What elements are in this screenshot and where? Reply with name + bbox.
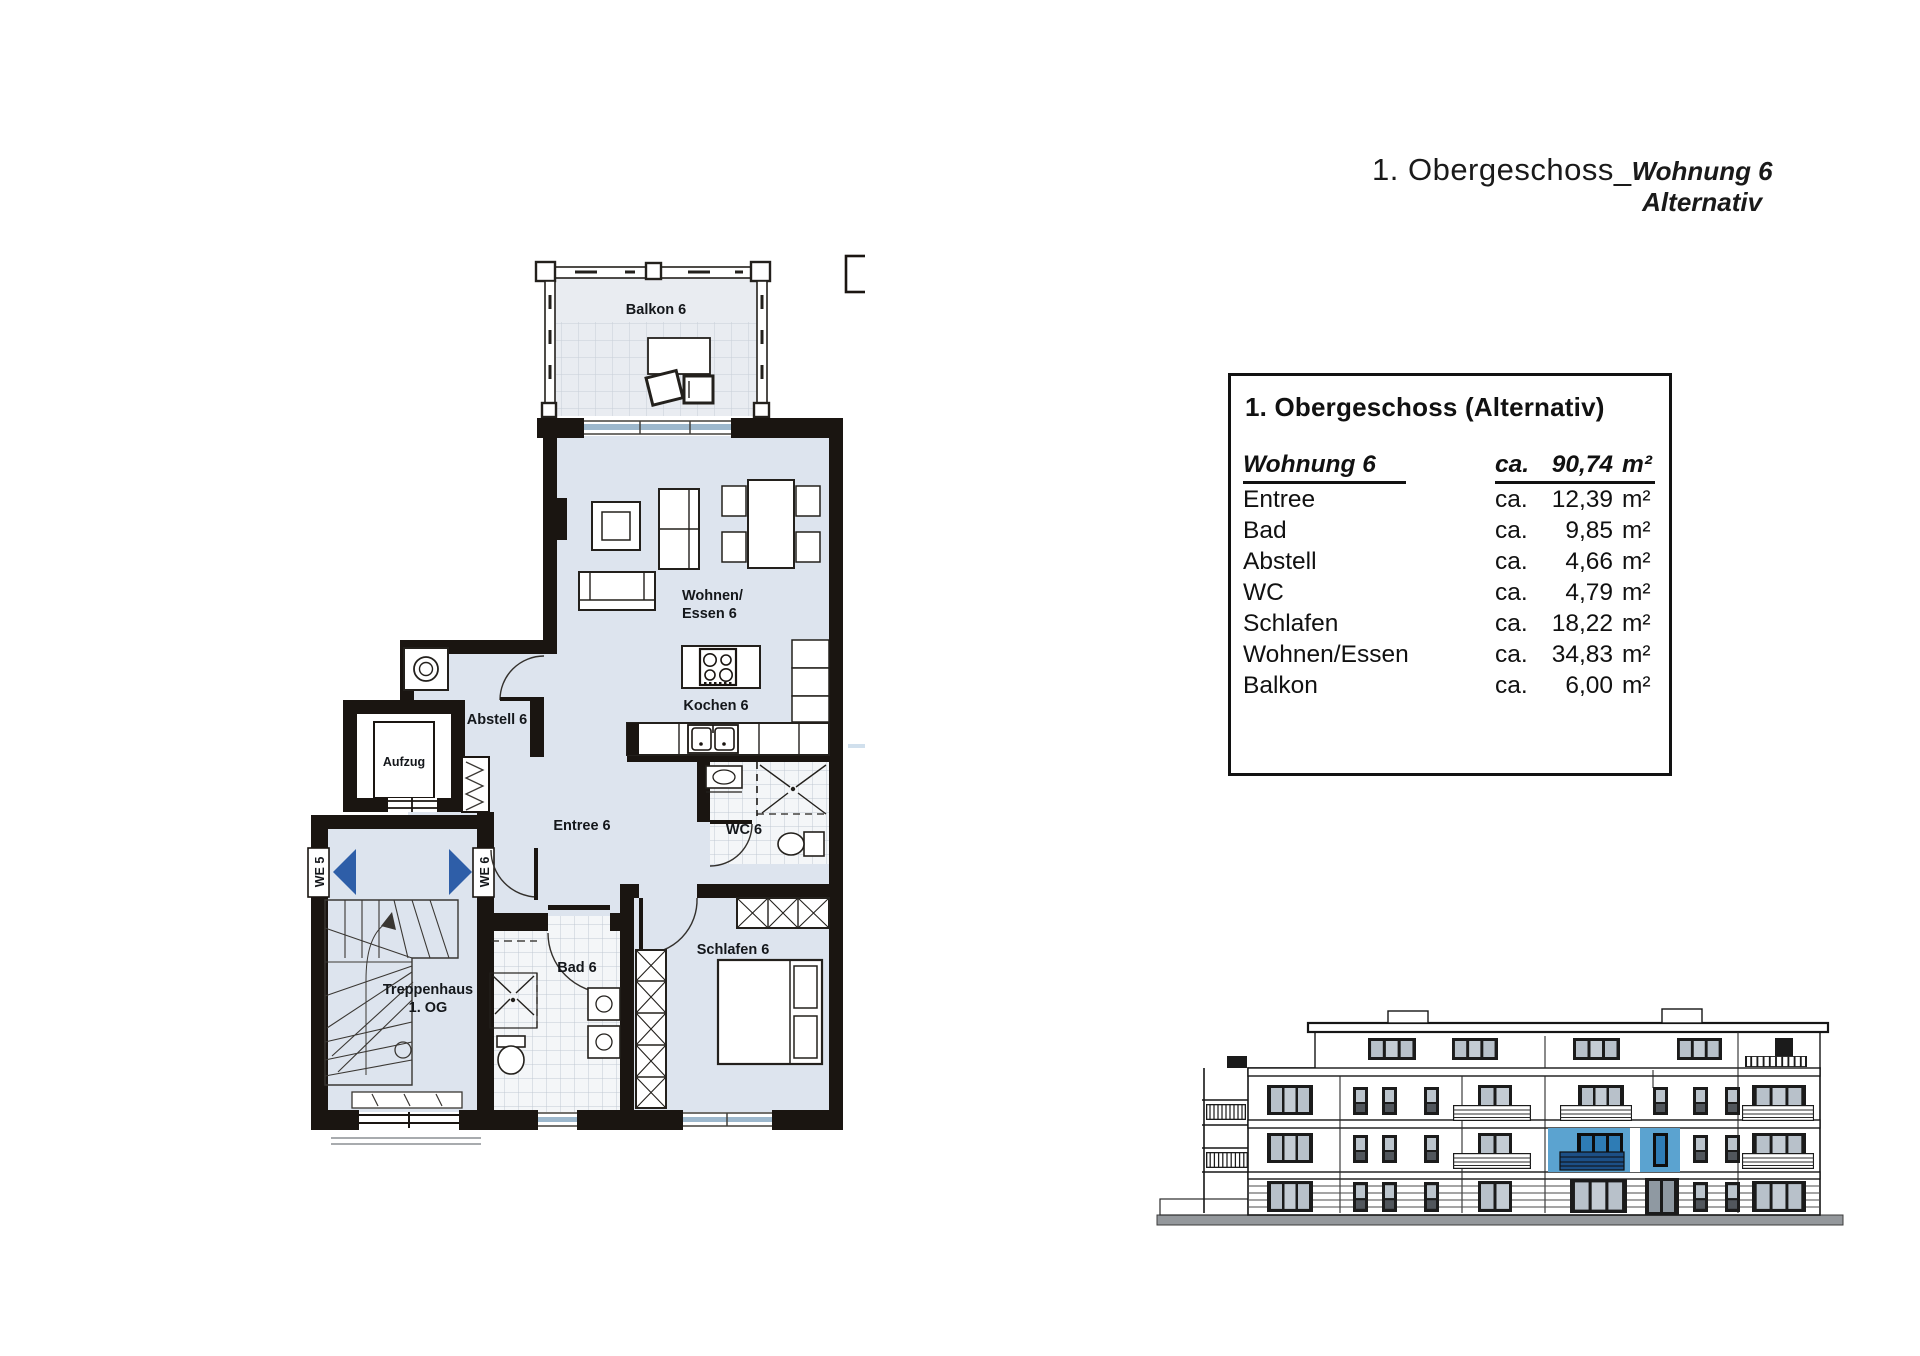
corner-column <box>846 256 865 292</box>
table-row: Abstell ca. 4,66 m² <box>1243 546 1655 577</box>
area-table-heading: 1. Obergeschoss (Alternativ) <box>1245 392 1669 423</box>
label-balkon: Balkon 6 <box>626 302 686 318</box>
area-table: 1. Obergeschoss (Alternativ) Wohnung 6 c… <box>1228 373 1672 776</box>
washing-machine-icon <box>404 648 448 690</box>
bed <box>718 960 822 1064</box>
table-row: Bad ca. 9,85 m² <box>1243 515 1655 546</box>
label-schlafen: Schlafen 6 <box>697 942 770 958</box>
header-unit: m² <box>1613 449 1652 480</box>
wardrobe-column <box>636 950 666 1108</box>
label-bad: Bad 6 <box>557 960 597 976</box>
table-row: Wohnen/Essen ca. 34,83 m² <box>1243 639 1655 670</box>
bath-toilet-icon <box>497 1036 525 1074</box>
label-treppenhaus-1: Treppenhaus <box>383 982 473 998</box>
wing-top-window <box>1227 1056 1247 1068</box>
label-wohnen-2: Essen 6 <box>682 606 737 622</box>
balcony-furniture <box>646 338 713 405</box>
building-elevation <box>1150 1003 1895 1253</box>
label-we5: WE 5 <box>313 857 327 888</box>
area-table-header-row: Wohnung 6 ca. 90,74 m² <box>1243 449 1655 484</box>
building-body <box>1248 1009 1828 1215</box>
table-row: Balkon ca. 6,00 m² <box>1243 670 1655 701</box>
scan-artifact-line <box>848 744 865 748</box>
label-treppenhaus-2: 1. OG <box>409 1000 448 1016</box>
wardrobe-row <box>737 898 829 928</box>
label-aufzug: Aufzug <box>383 755 425 769</box>
kitchen-sink-icon <box>688 725 738 753</box>
label-wohnen-1: Wohnen/ <box>682 588 743 604</box>
page-title-alternativ: Alternativ <box>1642 187 1762 218</box>
roof-box <box>1662 1009 1702 1023</box>
entry-door-marker <box>462 757 489 812</box>
label-we6: WE 6 <box>478 857 492 888</box>
wc-sink-icon <box>706 766 742 792</box>
roof-box <box>1388 1011 1428 1023</box>
table-row: Entree ca. 12,39 m² <box>1243 484 1655 515</box>
label-wc: WC 6 <box>726 822 762 838</box>
page-title-sub: Wohnung 6 Alternativ <box>1632 156 1773 218</box>
floor-plan: Balkon 6 Wohnen/ Essen 6 Kochen 6 Abstel… <box>295 250 865 1155</box>
stove-icon <box>700 649 736 685</box>
page-title-wohnung: Wohnung 6 <box>1632 156 1773 187</box>
storage-room <box>404 648 448 690</box>
table-row: Schlafen ca. 18,22 m² <box>1243 608 1655 639</box>
header-prefix: ca. <box>1495 449 1529 480</box>
table-row: WC ca. 4,79 m² <box>1243 577 1655 608</box>
label-abstell: Abstell 6 <box>467 712 527 728</box>
header-value: 90,74 <box>1552 449 1613 480</box>
header-label: Wohnung 6 <box>1243 449 1406 484</box>
highlighted-unit <box>1548 1128 1680 1172</box>
page-title-main: 1. Obergeschoss_ <box>1372 152 1632 188</box>
exposee-page: { "document": { "title": { "prefix": "1.… <box>0 0 1920 1356</box>
page-title: 1. Obergeschoss_ Wohnung 6 Alternativ <box>1372 152 1773 218</box>
label-entree: Entree 6 <box>553 818 610 834</box>
left-balcony-wing <box>1202 1056 1248 1213</box>
label-kochen: Kochen 6 <box>683 698 748 714</box>
